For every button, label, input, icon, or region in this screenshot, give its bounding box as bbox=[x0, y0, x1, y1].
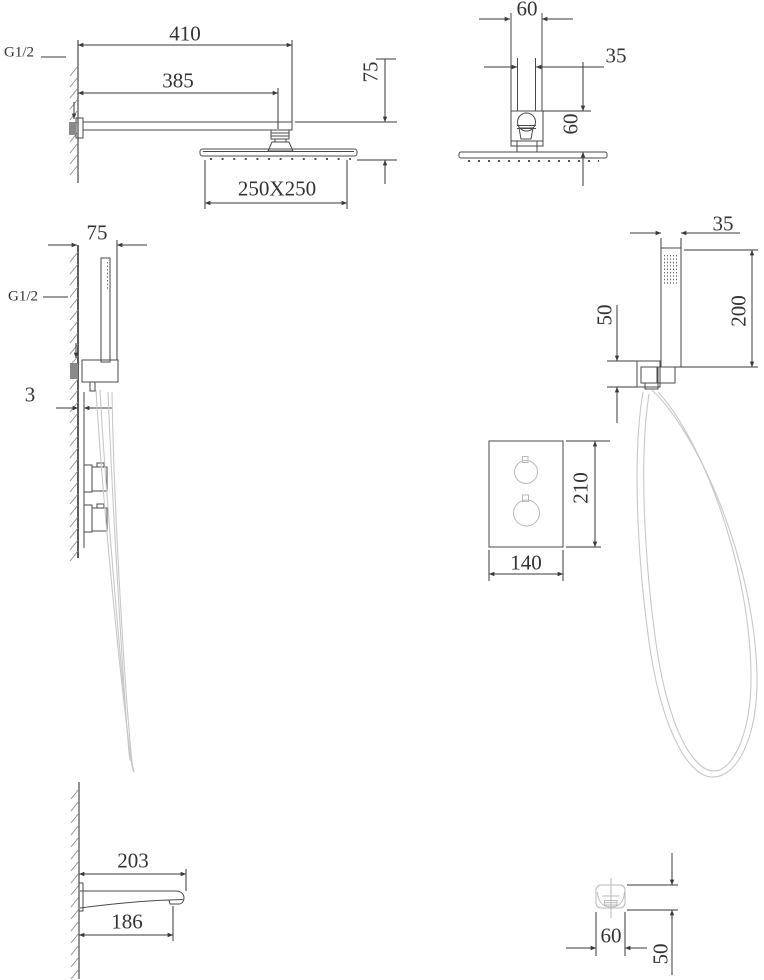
dim-arm-length: 410 bbox=[169, 24, 201, 45]
dim-pipe-width: 35 bbox=[606, 46, 627, 67]
dim-head-drop: 75 bbox=[361, 62, 382, 83]
label-inlet-thread-hand: G1/2 bbox=[8, 290, 38, 305]
view-control-plate bbox=[489, 441, 610, 581]
view-spout-side bbox=[71, 782, 186, 979]
label-inlet-thread-rain: G1/2 bbox=[4, 46, 34, 61]
dim-plate-gap: 3 bbox=[25, 385, 36, 406]
dim-flange-width: 60 bbox=[517, 0, 538, 20]
dim-arm-reach: 385 bbox=[162, 71, 194, 92]
dim-bracket-size: 50 bbox=[595, 305, 616, 326]
view-rain-shower-side bbox=[41, 40, 397, 209]
dim-bracket-depth: 75 bbox=[87, 223, 108, 244]
dim-spout-length: 203 bbox=[117, 851, 149, 872]
dim-spout-height: 50 bbox=[651, 944, 672, 965]
dim-handset-length: 200 bbox=[729, 295, 750, 327]
technical-drawing-page: 410 385 75 250X250 G1/2 60 35 60 75 G1/2… bbox=[0, 0, 764, 980]
view-hand-shower-side bbox=[43, 240, 147, 772]
dim-spout-width: 60 bbox=[601, 926, 622, 947]
dim-handset-width: 35 bbox=[713, 214, 734, 235]
view-rain-shower-front bbox=[459, 13, 607, 186]
drawing-canvas bbox=[0, 0, 764, 980]
dim-plate-height: 210 bbox=[571, 472, 592, 504]
dim-fitting-height: 60 bbox=[561, 114, 582, 135]
dim-head-size: 250X250 bbox=[238, 179, 316, 200]
dim-plate-width: 140 bbox=[510, 553, 542, 574]
dim-outlet-reach: 186 bbox=[111, 912, 143, 933]
